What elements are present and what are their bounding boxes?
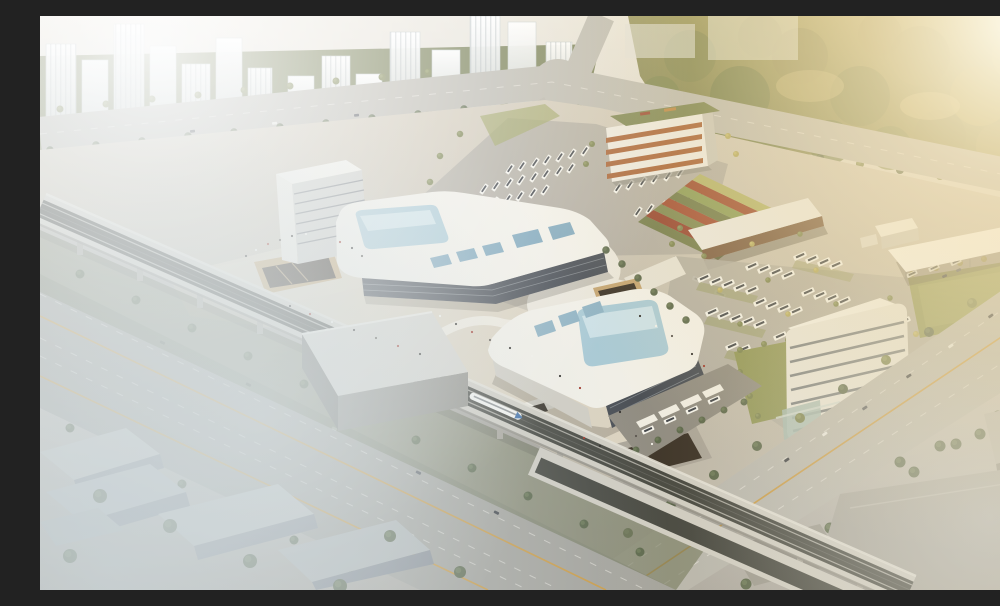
architectural-rendering: Aerial architectural rendering of a mode… bbox=[40, 16, 1000, 590]
rendering-canvas bbox=[40, 16, 1000, 590]
sun-flare bbox=[40, 16, 1000, 590]
atmosphere bbox=[40, 16, 1000, 590]
